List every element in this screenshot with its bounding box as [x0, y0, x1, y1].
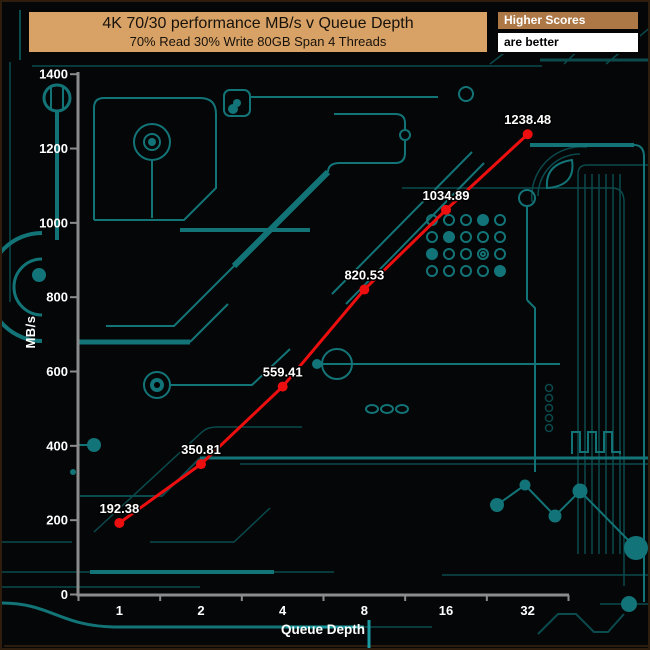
x-tick-label: 4	[279, 603, 287, 618]
are-better-badge: are better	[496, 31, 640, 54]
title-banner: 4K 70/30 performance MB/s v Queue Depth …	[27, 10, 489, 54]
x-tick-label: 16	[439, 603, 453, 618]
y-tick-label: 200	[46, 513, 68, 528]
data-point-label: 820.53	[344, 268, 384, 283]
y-tick-label: 0	[61, 587, 68, 602]
higher-scores-badge: Higher Scores	[496, 10, 640, 31]
y-tick-label: 400	[46, 438, 68, 453]
data-point	[278, 382, 288, 392]
data-point-label: 1238.48	[504, 112, 551, 127]
x-axis-title: Queue Depth	[243, 622, 403, 637]
y-axis-title: MB/s	[23, 304, 41, 360]
y-tick-label: 800	[46, 290, 68, 305]
performance-line-chart: 020040060080010001200140012481632192.383…	[2, 2, 650, 650]
data-point-label: 559.41	[263, 365, 303, 380]
x-tick-label: 8	[361, 603, 368, 618]
x-tick-label: 32	[520, 603, 534, 618]
x-tick-label: 1	[116, 603, 123, 618]
data-point	[359, 285, 369, 295]
chart-canvas: 020040060080010001200140012481632192.383…	[0, 0, 650, 650]
x-tick-label: 2	[197, 603, 204, 618]
data-point	[114, 518, 124, 528]
chart-subtitle: 70% Read 30% Write 80GB Span 4 Threads	[130, 34, 387, 50]
y-tick-label: 1200	[39, 141, 68, 156]
y-tick-label: 600	[46, 364, 68, 379]
data-point	[523, 129, 533, 139]
y-tick-label: 1000	[39, 215, 68, 230]
y-tick-label: 1400	[39, 67, 68, 82]
data-point-label: 192.38	[99, 501, 139, 516]
chart-title: 4K 70/30 performance MB/s v Queue Depth	[102, 14, 413, 34]
data-point	[196, 459, 206, 469]
data-point	[441, 205, 451, 215]
data-point-label: 1034.89	[423, 188, 470, 203]
data-point-label: 350.81	[181, 442, 221, 457]
